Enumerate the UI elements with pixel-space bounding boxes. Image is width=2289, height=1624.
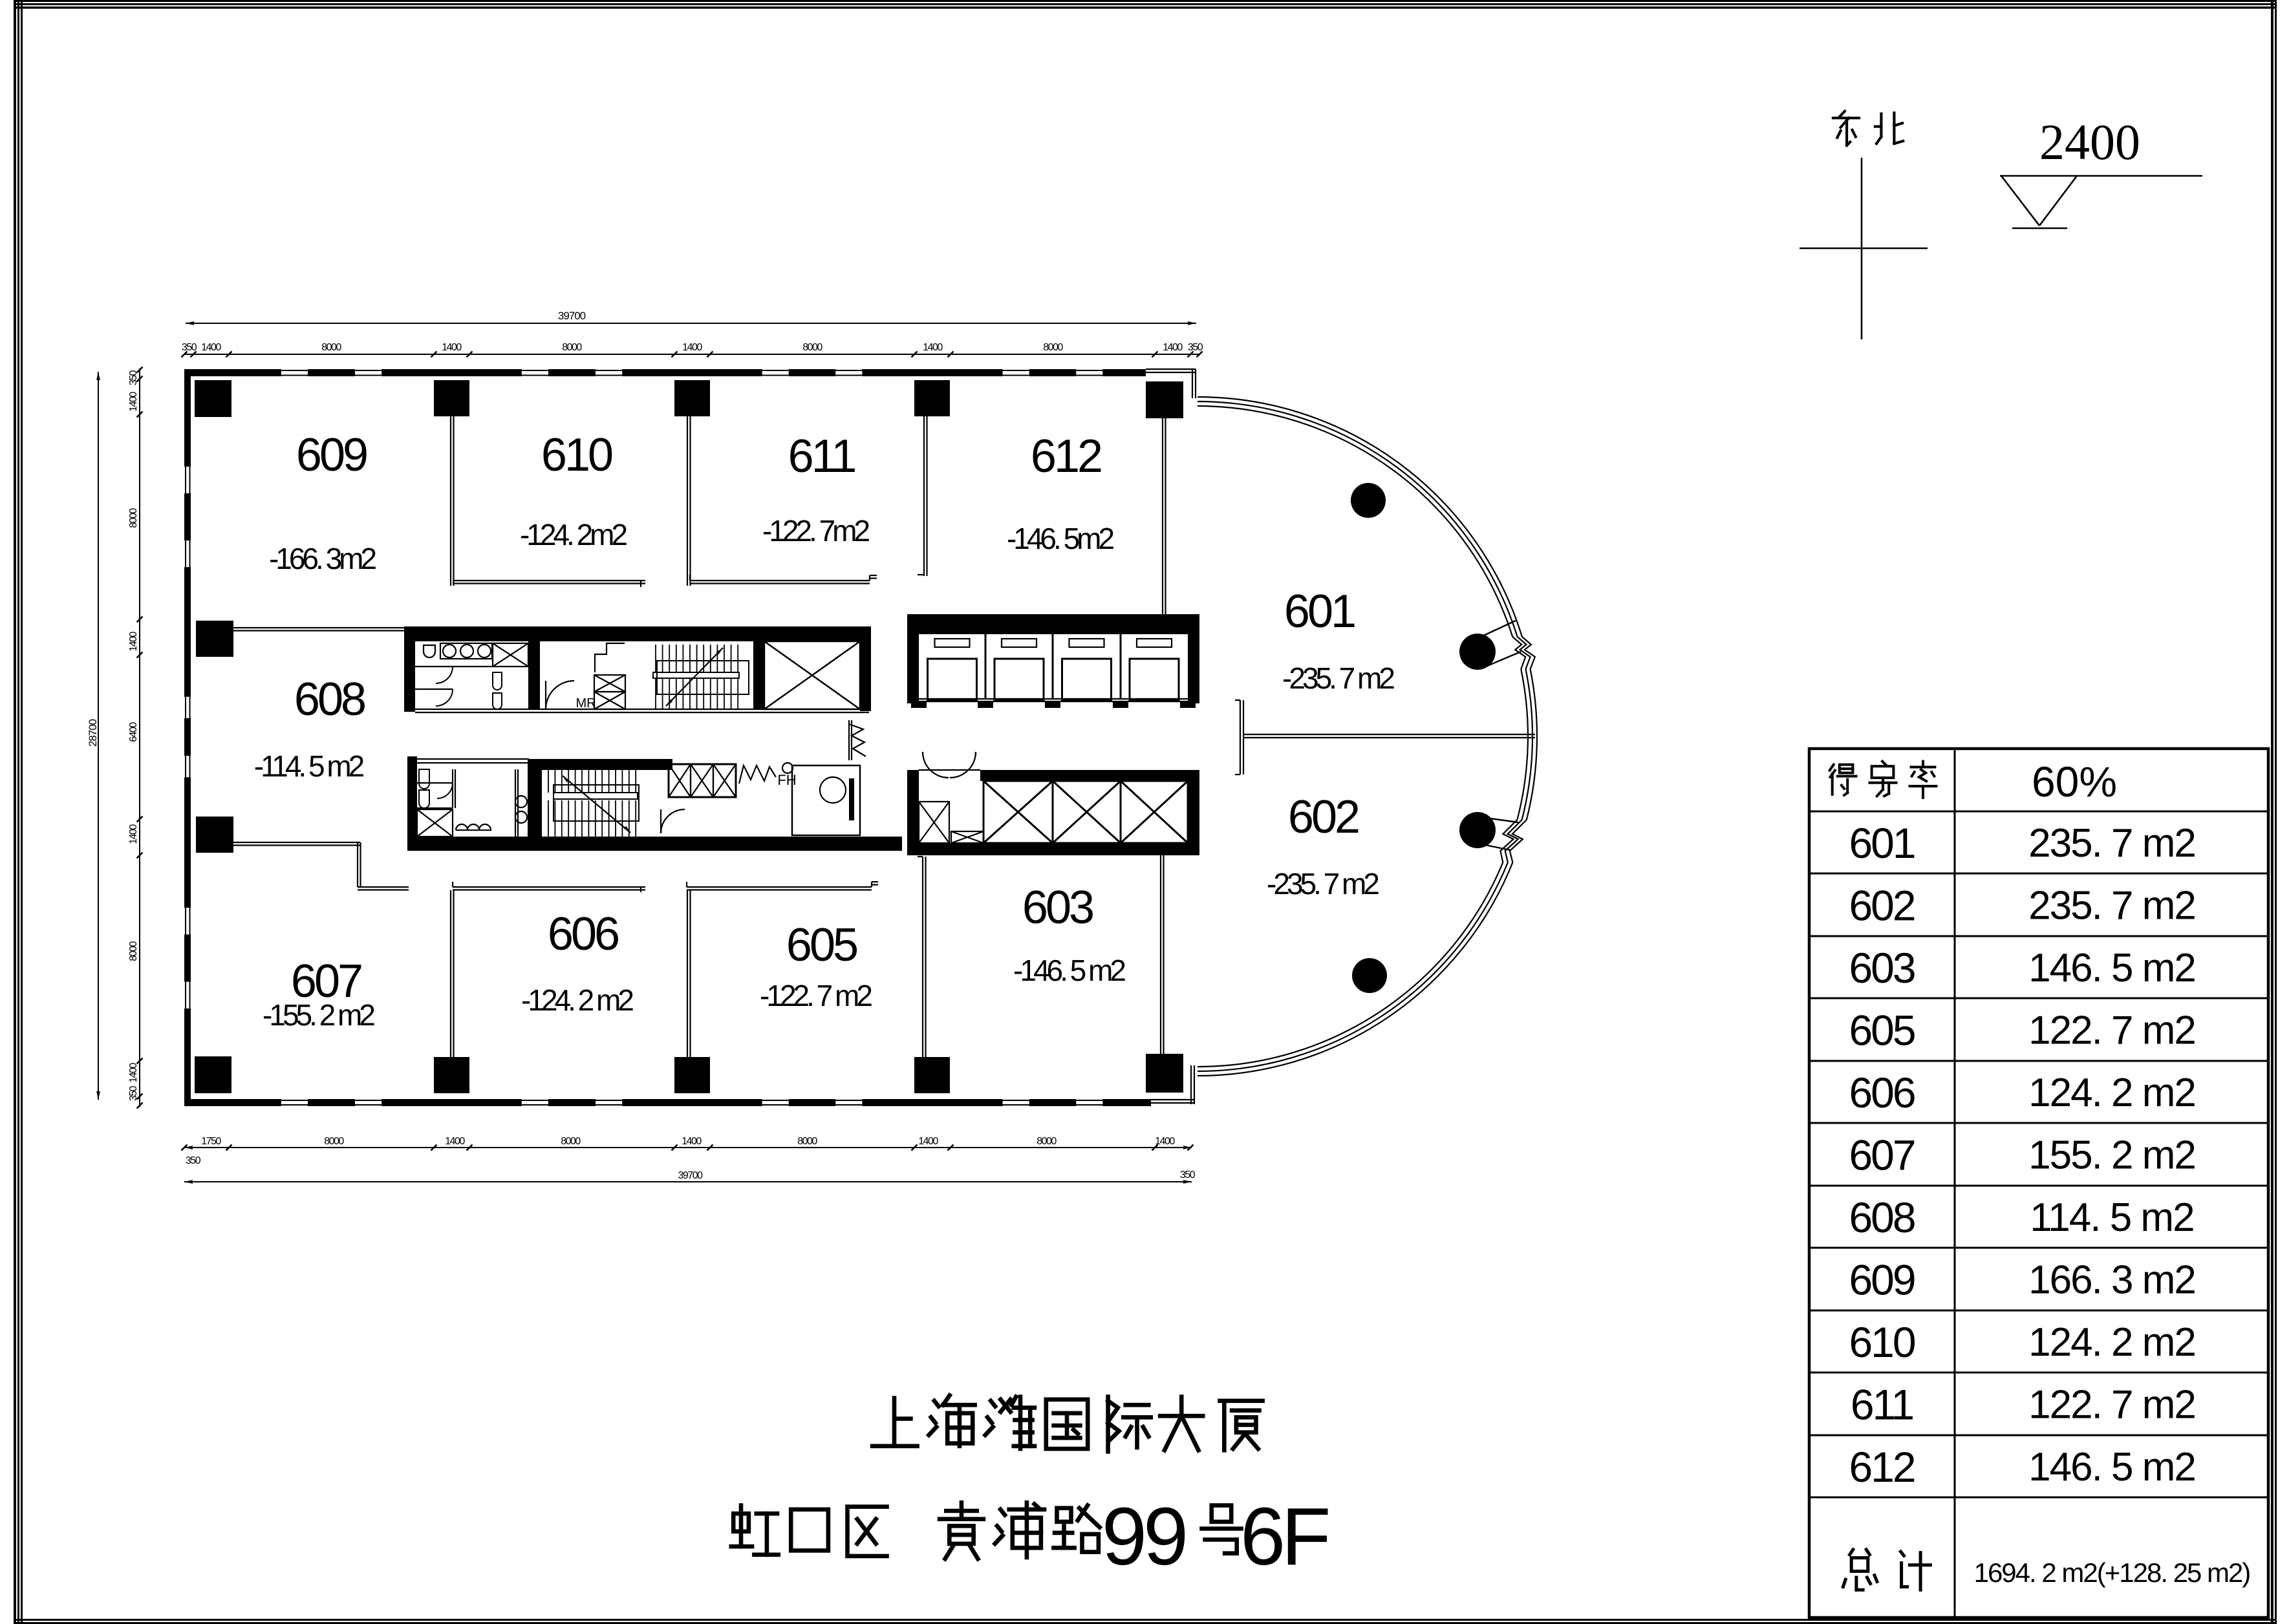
svg-text:122. 7 m2: 122. 7 m2 [2028, 1383, 2195, 1427]
svg-text:235. 7 m2: 235. 7 m2 [2028, 884, 2195, 928]
svg-text:MR: MR [575, 696, 596, 710]
svg-text:602: 602 [1288, 791, 1359, 843]
svg-text:1750: 1750 [201, 1136, 221, 1147]
svg-text:8000: 8000 [1043, 342, 1063, 353]
svg-text:1400: 1400 [682, 342, 702, 353]
svg-text:603: 603 [1849, 944, 1914, 992]
svg-text:610: 610 [1849, 1318, 1915, 1366]
svg-text:601: 601 [1284, 586, 1355, 637]
svg-text:-124. 2m2: -124. 2m2 [520, 518, 627, 551]
svg-text:2400: 2400 [2039, 114, 2140, 170]
svg-text:610: 610 [541, 429, 612, 481]
svg-text:39700: 39700 [558, 310, 586, 322]
svg-text:350: 350 [1180, 1170, 1196, 1181]
svg-text:39700: 39700 [678, 1170, 704, 1181]
svg-text:FH: FH [777, 772, 796, 788]
svg-text:1400: 1400 [445, 1136, 465, 1147]
svg-text:350: 350 [186, 1155, 201, 1166]
svg-text:235. 7 m2: 235. 7 m2 [2028, 821, 2195, 866]
svg-text:1694. 2 m2(+128. 25 m2): 1694. 2 m2(+128. 25 m2) [1974, 1557, 2250, 1588]
svg-text:605: 605 [786, 919, 857, 971]
svg-text:1400: 1400 [128, 632, 139, 652]
svg-text:-122. 7m2: -122. 7m2 [762, 514, 870, 548]
svg-text:122. 7 m2: 122. 7 m2 [2028, 1009, 2195, 1053]
svg-text:8000: 8000 [562, 342, 582, 353]
svg-text:-235. 7 m2: -235. 7 m2 [1267, 867, 1379, 901]
svg-text:114. 5 m2: 114. 5 m2 [2030, 1195, 2193, 1240]
svg-text:99: 99 [1102, 1491, 1185, 1582]
svg-text:1400: 1400 [128, 392, 139, 412]
svg-text:124. 2 m2: 124. 2 m2 [2028, 1071, 2195, 1115]
svg-text:350: 350 [128, 1085, 139, 1101]
svg-text:8000: 8000 [128, 941, 139, 961]
svg-text:-166. 3m2: -166. 3m2 [269, 542, 376, 575]
svg-text:-146. 5 m2: -146. 5 m2 [1013, 954, 1125, 987]
svg-text:603: 603 [1022, 882, 1093, 934]
svg-text:-124. 2 m2: -124. 2 m2 [521, 983, 633, 1017]
svg-text:1400: 1400 [1163, 342, 1183, 353]
svg-text:-146. 5m2: -146. 5m2 [1007, 522, 1114, 555]
svg-text:-114. 5 m2: -114. 5 m2 [254, 749, 364, 783]
svg-text:6: 6 [1240, 1491, 1285, 1582]
svg-text:612: 612 [1849, 1443, 1914, 1491]
svg-text:350: 350 [128, 370, 139, 385]
svg-text:611: 611 [788, 431, 855, 482]
svg-text:608: 608 [1849, 1193, 1914, 1241]
svg-text:-155. 2 m2: -155. 2 m2 [263, 998, 374, 1032]
svg-text:608: 608 [294, 674, 365, 725]
svg-text:124. 2 m2: 124. 2 m2 [2028, 1320, 2195, 1365]
svg-text:605: 605 [1849, 1007, 1914, 1054]
svg-text:8000: 8000 [802, 342, 822, 353]
svg-text:1400: 1400 [682, 1136, 702, 1147]
svg-text:8000: 8000 [128, 508, 139, 528]
svg-text:6400: 6400 [128, 722, 139, 742]
svg-text:146. 5 m2: 146. 5 m2 [2028, 1445, 2195, 1490]
svg-text:166. 3 m2: 166. 3 m2 [2028, 1258, 2195, 1303]
svg-text:1400: 1400 [128, 824, 139, 844]
svg-text:-235. 7 m2: -235. 7 m2 [1282, 661, 1394, 695]
svg-text:-122. 7 m2: -122. 7 m2 [760, 979, 872, 1012]
svg-text:609: 609 [1849, 1256, 1914, 1304]
svg-text:8000: 8000 [1037, 1136, 1057, 1147]
svg-text:350: 350 [1188, 342, 1203, 353]
svg-text:1400: 1400 [442, 342, 462, 353]
svg-text:1400: 1400 [1155, 1136, 1175, 1147]
svg-text:8000: 8000 [797, 1136, 817, 1147]
svg-text:606: 606 [548, 908, 618, 960]
svg-text:146. 5 m2: 146. 5 m2 [2028, 946, 2195, 990]
svg-text:607: 607 [1849, 1131, 1914, 1179]
svg-text:350: 350 [182, 342, 197, 353]
svg-text:1400: 1400 [201, 342, 221, 353]
svg-text:60%: 60% [2032, 758, 2117, 806]
svg-text:8000: 8000 [561, 1136, 581, 1147]
svg-text:602: 602 [1849, 882, 1914, 930]
svg-text:1400: 1400 [918, 1136, 938, 1147]
svg-text:8000: 8000 [321, 342, 341, 353]
svg-text:606: 606 [1849, 1069, 1914, 1116]
svg-text:155. 2 m2: 155. 2 m2 [2028, 1133, 2195, 1178]
svg-text:28700: 28700 [87, 719, 99, 747]
svg-text:F: F [1282, 1491, 1331, 1582]
svg-text:601: 601 [1849, 819, 1914, 867]
svg-text:609: 609 [296, 429, 367, 481]
svg-text:1400: 1400 [128, 1063, 139, 1083]
svg-text:8000: 8000 [324, 1136, 344, 1147]
svg-text:1400: 1400 [923, 342, 943, 353]
svg-text:612: 612 [1031, 431, 1101, 482]
svg-text:611: 611 [1851, 1381, 1913, 1429]
